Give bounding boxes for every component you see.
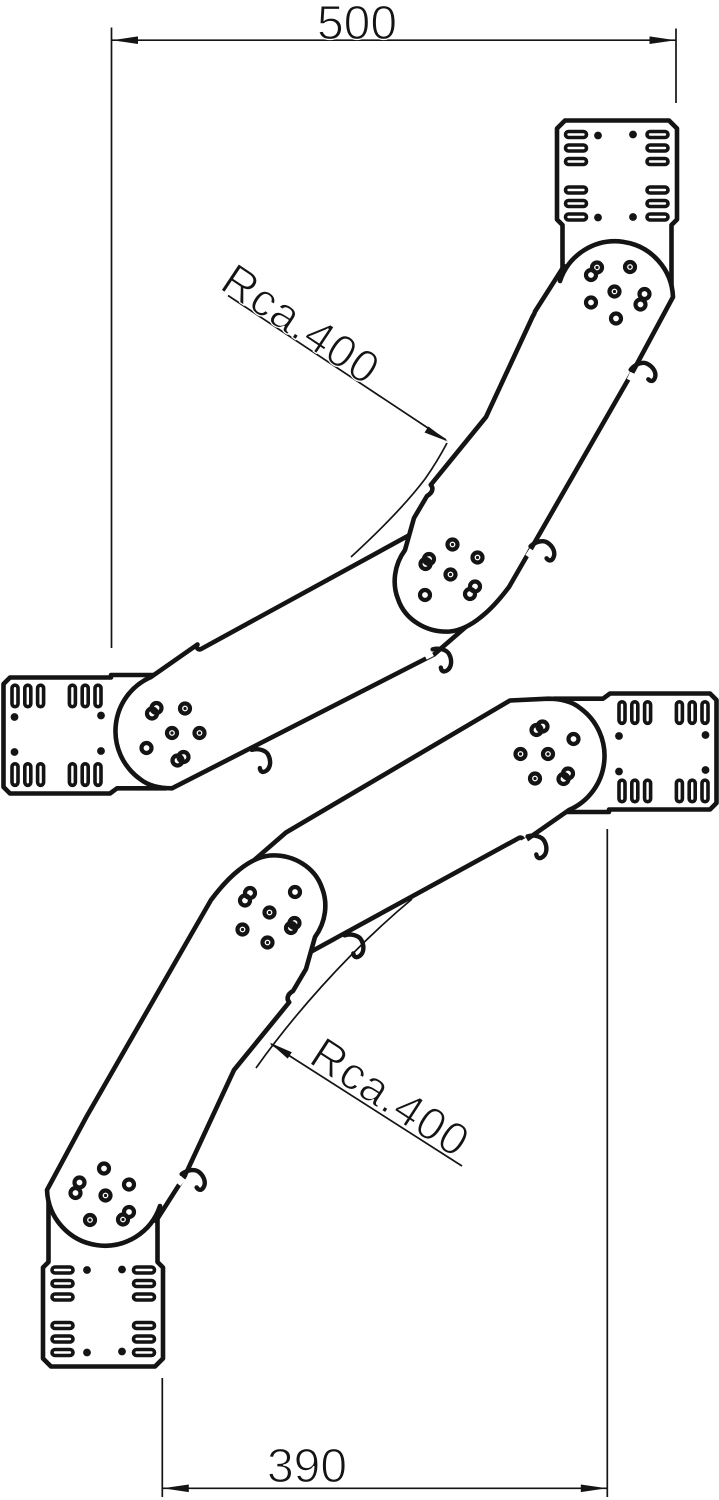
svg-text:390: 390 xyxy=(267,1440,347,1493)
svg-text:500: 500 xyxy=(317,0,397,50)
